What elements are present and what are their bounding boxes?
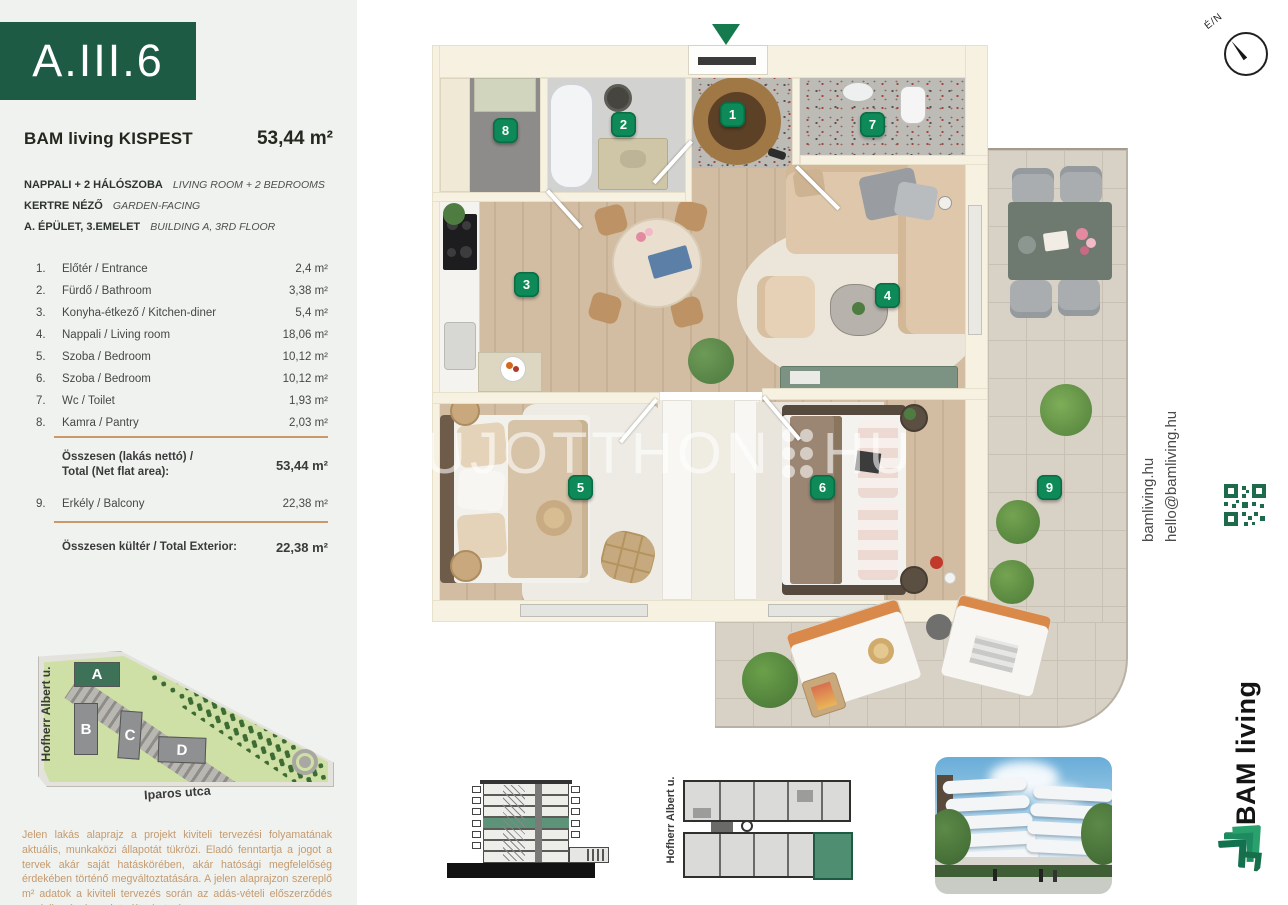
- divider-line: [54, 436, 328, 438]
- table-row: 7.Wc / Toilet1,93 m²: [36, 390, 328, 412]
- floor-slab: [483, 794, 569, 796]
- sideboard-books: [790, 371, 820, 384]
- watermark-name: UJOTTHON: [424, 420, 772, 487]
- table-row: 2.Fürdő / Bathroom3,38 m²: [36, 280, 328, 302]
- compass-north-label: É/N: [1203, 11, 1225, 32]
- watermark-tld: HU: [823, 420, 915, 487]
- compass-icon: [1224, 32, 1268, 76]
- flower-pot: [930, 556, 943, 569]
- row-area: 2,03 m²: [289, 417, 328, 429]
- outdoor-bowl: [1018, 236, 1036, 254]
- outdoor-chair: [1010, 280, 1052, 318]
- badge-label: 2: [620, 117, 627, 132]
- feature-rooms-hu: NAPPALI + 2 HÁLÓSZOBA: [24, 179, 163, 191]
- row-name: Nappali / Living room: [62, 329, 283, 341]
- exterior-total-value: 22,38 m²: [276, 540, 328, 555]
- row-name: Konyha-étkező / Kitchen-diner: [62, 307, 295, 319]
- unit-code: A.III.6: [32, 35, 164, 87]
- floor-key-plan: Hofherr Albert u.: [655, 768, 860, 886]
- burner: [460, 246, 472, 258]
- site-building-a: A: [74, 662, 120, 687]
- highlighted-unit: [813, 832, 853, 880]
- badge-label: 6: [819, 480, 826, 495]
- unit-divider: [787, 782, 789, 820]
- balcony-band: [1033, 785, 1112, 802]
- net-total-value: 53,44 m²: [276, 458, 328, 473]
- feature-floor-en: BUILDING A, 3RD FLOOR: [150, 221, 275, 233]
- feature-floor: A. ÉPÜLET, 3.EMELET BUILDING A, 3RD FLOO…: [24, 221, 344, 237]
- window-icon: [472, 820, 481, 827]
- unit-code-badge: A.III.6: [0, 22, 196, 100]
- site-building-d: D: [158, 736, 207, 764]
- room-badge-2: 2: [611, 112, 636, 137]
- unit-divider: [719, 782, 721, 820]
- room-badge-8: 8: [493, 118, 518, 143]
- person: [993, 869, 997, 881]
- entry-door: [698, 57, 756, 65]
- burner: [447, 248, 456, 257]
- left-info-panel: A.III.6 BAM living KISPEST 53,44 m² NAPP…: [0, 0, 357, 905]
- cutting-board: [1043, 230, 1069, 251]
- roof-line: [480, 780, 572, 784]
- balcony-row: 9. Erkély / Balcony 22,38 m²: [36, 493, 328, 515]
- flower-pot: [944, 572, 956, 584]
- brand-logotype: BAM living: [1231, 655, 1267, 825]
- room-badge-3: 3: [514, 272, 539, 297]
- person: [1053, 870, 1057, 882]
- row-name: Szoba / Bedroom: [62, 351, 283, 363]
- wall-bottom: [432, 600, 988, 622]
- row-area: 18,06 m²: [283, 329, 328, 341]
- qr-code: [1222, 482, 1268, 528]
- unit-block: [797, 790, 813, 802]
- badge-label: 9: [1046, 480, 1053, 495]
- watermark-dots-icon: [782, 429, 813, 478]
- legal-disclaimer: Jelen lakás alaprajz a projekt kiviteli …: [22, 828, 332, 905]
- ground-bar: [447, 863, 595, 878]
- outdoor-chair: [1060, 166, 1102, 204]
- outdoor-chair: [1012, 168, 1054, 206]
- wall-left: [432, 45, 440, 622]
- flowers: [1080, 246, 1089, 255]
- row-area: 10,12 m²: [283, 351, 328, 363]
- watermark: UJOTTHON HU: [424, 420, 915, 487]
- table-row: 5.Szoba / Bedroom10,12 m²: [36, 346, 328, 368]
- keyplan-wing-bottom: [683, 832, 851, 878]
- armchair: [757, 276, 815, 338]
- net-total-row: Összesen (lakás nettó) / Total (Net flat…: [62, 450, 328, 480]
- room-badge-9: 9: [1037, 475, 1062, 500]
- room-badge-6: 6: [810, 475, 835, 500]
- indoor-plant: [688, 338, 734, 384]
- window-icon: [472, 831, 481, 838]
- toilet: [900, 86, 926, 124]
- flowers: [645, 228, 653, 236]
- feature-orientation: KERTRE NÉZŐ GARDEN-FACING: [24, 200, 344, 216]
- pantry-shelf: [474, 78, 536, 112]
- net-total-label-en: Total (Net flat area):: [62, 465, 193, 480]
- feature-rooms-en: LIVING ROOM + 2 BEDROOMS: [173, 179, 325, 191]
- building-render-photo: [935, 757, 1112, 894]
- row-num: 7.: [36, 395, 62, 407]
- row-num: 1.: [36, 263, 62, 275]
- floor-lamp: [938, 196, 952, 210]
- floor-slab: [483, 805, 569, 807]
- net-total-label: Összesen (lakás nettó) / Total (Net flat…: [62, 450, 193, 480]
- row-num: 3.: [36, 307, 62, 319]
- window-icon: [571, 797, 580, 804]
- net-total-label-hu: Összesen (lakás nettó) /: [62, 450, 193, 465]
- website-text: bamliving.hu: [1138, 322, 1161, 542]
- wall-wc-bottom: [800, 155, 988, 165]
- divider-line: [54, 521, 328, 523]
- wall-inner-h1: [432, 192, 692, 202]
- room-badge-1: 1: [720, 102, 745, 127]
- window-icon: [472, 808, 481, 815]
- window-icon: [571, 786, 580, 793]
- nightstand: [450, 550, 482, 582]
- building-d-label: D: [176, 741, 187, 758]
- unit-divider: [753, 782, 755, 820]
- unit-block: [693, 808, 711, 818]
- window-icon: [571, 820, 580, 827]
- row-name: Kamra / Pantry: [62, 417, 289, 429]
- window-icon: [571, 808, 580, 815]
- row-area: 10,12 m²: [283, 373, 328, 385]
- kitchen-sink: [444, 322, 476, 370]
- row-area: 2,4 m²: [295, 263, 328, 275]
- row-area: 3,38 m²: [289, 285, 328, 297]
- roundabout-core: [299, 756, 311, 768]
- window-bed5: [520, 604, 648, 617]
- wall-entry-wc: [792, 78, 800, 165]
- building-a-label: A: [92, 666, 103, 683]
- unit-divider: [787, 834, 789, 876]
- outdoor-chair: [1058, 278, 1100, 316]
- sink-basin: [620, 150, 646, 168]
- sofa-pillow: [893, 181, 938, 221]
- feature-orientation-en: GARDEN-FACING: [113, 200, 200, 212]
- street-label-hofherr-keyplan: Hofherr Albert u.: [665, 760, 677, 880]
- window-icon: [472, 786, 481, 793]
- unit-divider: [821, 782, 823, 820]
- floor-slab: [483, 850, 569, 852]
- feature-rooms: NAPPALI + 2 HÁLÓSZOBA LIVING ROOM + 2 BE…: [24, 179, 344, 195]
- kitchen-plant: [443, 203, 465, 225]
- flowers: [1076, 228, 1088, 240]
- feature-orientation-hu: KERTRE NÉZŐ: [24, 200, 103, 212]
- badge-label: 3: [523, 277, 530, 292]
- hall-cabinet: [440, 78, 470, 192]
- badge-label: 5: [577, 480, 584, 495]
- knit-pouf: [536, 500, 572, 536]
- nightstand: [900, 566, 928, 594]
- nightstand-plant: [904, 408, 916, 420]
- fruit: [513, 366, 519, 372]
- window-icon: [472, 797, 481, 804]
- bathtub: [549, 83, 594, 189]
- unit-divider: [753, 834, 755, 876]
- site-building-c: C: [117, 710, 142, 759]
- row-num: 9.: [36, 498, 62, 510]
- building-b-label: B: [81, 721, 92, 738]
- balcony-band: [942, 777, 1027, 794]
- row-name: Erkély / Balcony: [62, 498, 283, 510]
- core-shaft: [535, 784, 542, 862]
- row-num: 8.: [36, 417, 62, 429]
- contact-block: bamliving.hu hello@bamliving.hu: [1138, 322, 1182, 542]
- table-row: 8.Kamra / Pantry2,03 m²: [36, 412, 328, 434]
- table-row: 6.Szoba / Bedroom10,12 m²: [36, 368, 328, 390]
- table-row: 4.Nappali / Living room18,06 m²: [36, 324, 328, 346]
- entrance-marker-icon: [712, 24, 740, 45]
- wall-pantry-bath: [540, 78, 548, 192]
- row-name: Wc / Toilet: [62, 395, 289, 407]
- balcony-band: [945, 795, 1030, 812]
- badge-label: 7: [869, 117, 876, 132]
- site-plan-map: A B C D Hofherr Albert u. Iparos utca: [34, 645, 336, 797]
- person: [1039, 869, 1043, 882]
- row-num: 5.: [36, 351, 62, 363]
- brand-chevrons-icon: [1215, 812, 1281, 878]
- room-area-table: 1.Előtér / Entrance2,4 m² 2.Fürdő / Bath…: [36, 258, 328, 434]
- table-row: 1.Előtér / Entrance2,4 m²: [36, 258, 328, 280]
- row-name: Előtér / Entrance: [62, 263, 295, 275]
- row-num: 4.: [36, 329, 62, 341]
- keyplan-wing-top: [683, 780, 851, 822]
- row-area: 5,4 m²: [295, 307, 328, 319]
- row-name: Szoba / Bedroom: [62, 373, 283, 385]
- terrace-sliding-door: [968, 205, 982, 335]
- table-row: 3.Konyha-étkező / Kitchen-diner5,4 m²: [36, 302, 328, 324]
- brochure-page: A.III.6 BAM living KISPEST 53,44 m² NAPP…: [0, 0, 1288, 905]
- washing-machine: [604, 84, 632, 112]
- building-section-drawing: [447, 775, 599, 880]
- bridge-link: [711, 822, 733, 832]
- title-row: BAM living KISPEST 53,44 m²: [24, 128, 333, 150]
- bed6-pillow: [858, 504, 898, 580]
- highlighted-floor: [483, 818, 569, 828]
- window-icon: [571, 831, 580, 838]
- fruit: [506, 362, 513, 369]
- burner: [462, 221, 471, 230]
- project-title: BAM living KISPEST: [24, 129, 193, 149]
- room-badge-7: 7: [860, 112, 885, 137]
- email-text: hello@bamliving.hu: [1161, 322, 1184, 542]
- room-badge-5: 5: [568, 475, 593, 500]
- row-num: 6.: [36, 373, 62, 385]
- stair-hatch: [503, 785, 525, 861]
- terrace-bush: [742, 652, 798, 708]
- room-badge-4: 4: [875, 283, 900, 308]
- row-area: 1,93 m²: [289, 395, 328, 407]
- wall-kitchen-bed5: [432, 392, 660, 404]
- building-c-label: C: [124, 726, 136, 744]
- terrace-bush: [996, 500, 1040, 544]
- total-area-value: 53,44 m²: [257, 128, 333, 150]
- badge-label: 4: [884, 288, 891, 303]
- floor-slab: [483, 839, 569, 841]
- terrace-bush: [990, 560, 1034, 604]
- badge-label: 1: [729, 107, 736, 122]
- wall-living-bed6: [762, 388, 988, 400]
- window-icon: [472, 842, 481, 849]
- feature-floor-hu: A. ÉPÜLET, 3.EMELET: [24, 221, 140, 233]
- site-building-b: B: [74, 703, 98, 755]
- row-area: 22,38 m²: [283, 498, 328, 510]
- row-num: 2.: [36, 285, 62, 297]
- unit-divider: [719, 834, 721, 876]
- exterior-total-row: Összesen kültér / Total Exterior: 22,38 …: [62, 540, 328, 555]
- wc-sink: [842, 82, 874, 102]
- badge-label: 8: [502, 123, 509, 138]
- railing-hatch: [587, 849, 607, 861]
- floor-slab: [483, 828, 569, 830]
- ground-path: [935, 877, 1112, 894]
- street-label-hofherr: Hofherr Albert u.: [39, 644, 53, 784]
- row-name: Fürdő / Bathroom: [62, 285, 289, 297]
- exterior-total-label: Összesen kültér / Total Exterior:: [62, 540, 237, 555]
- table-plant: [852, 302, 865, 315]
- terrace-grass-plant: [1040, 384, 1092, 436]
- courtyard-circle: [741, 820, 753, 832]
